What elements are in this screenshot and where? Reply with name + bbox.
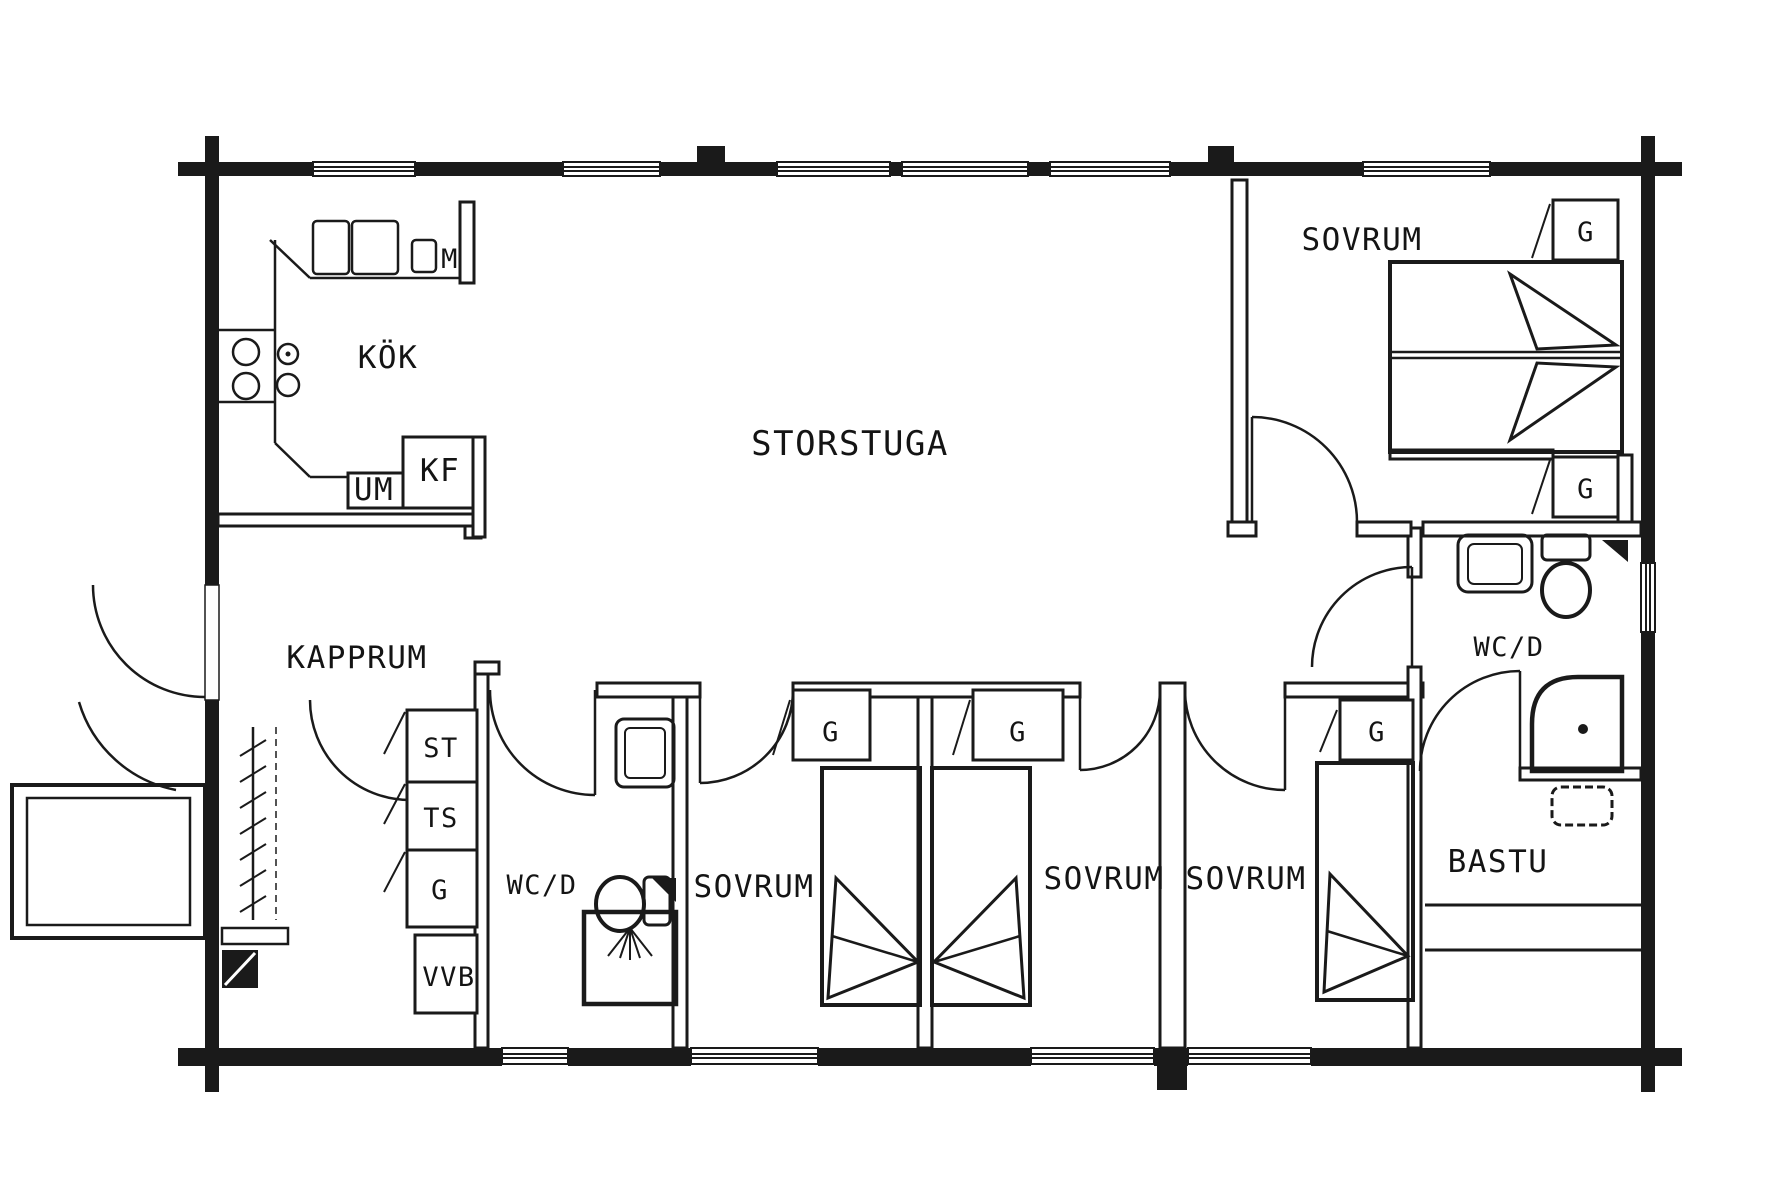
sink-right — [1458, 535, 1532, 592]
door-kapprum — [310, 700, 410, 800]
bed-sovrum-1 — [822, 768, 920, 1005]
kitchen-sink — [313, 221, 398, 274]
door-sovrum-2 — [1080, 690, 1160, 770]
bench — [222, 928, 288, 944]
corner-marker-right — [1602, 540, 1628, 562]
window-top-2 — [563, 162, 660, 176]
label-wc-mid: WC/D — [506, 870, 577, 901]
label-g-room2: G — [1009, 717, 1027, 748]
label-sovrum-3: SOVRUM — [1186, 861, 1307, 897]
toilet-mid — [596, 877, 670, 931]
bed-top-right-double — [1390, 262, 1622, 452]
closet-swing-lines — [773, 204, 1550, 755]
entrance-threshold — [205, 585, 219, 700]
label-sovrum-1: SOVRUM — [694, 869, 815, 905]
shower-right — [1532, 677, 1622, 771]
label-g-room3: G — [1368, 717, 1386, 748]
floor-plan: STORSTUGA KÖK KAPPRUM SOVRUM SOVRUM SOVR… — [0, 0, 1770, 1181]
label-kok: KÖK — [358, 339, 419, 376]
bed-sovrum-3 — [1317, 763, 1413, 1000]
shower-spray-icon — [608, 928, 652, 960]
door-entrance — [79, 585, 205, 790]
label-storstuga: STORSTUGA — [751, 424, 949, 464]
corner-marker-mid — [652, 878, 676, 902]
sauna-heater — [1552, 787, 1612, 825]
label-ts: TS — [423, 803, 459, 834]
label-bastu: BASTU — [1448, 844, 1549, 880]
window-top-6 — [1363, 162, 1490, 176]
label-g-tr2: G — [1577, 474, 1595, 505]
label-sovrum-top: SOVRUM — [1302, 222, 1423, 258]
sink-mid — [616, 719, 674, 787]
cabinet-swing-lines — [384, 712, 405, 892]
bathroom-fixtures — [584, 535, 1628, 1004]
door-wc-mid — [490, 690, 595, 795]
label-g-room1: G — [822, 717, 840, 748]
label-st: ST — [423, 733, 459, 764]
label-m: M — [441, 244, 459, 275]
label-sovrum-2: SOVRUM — [1044, 861, 1165, 897]
stove-burners — [233, 339, 299, 399]
window-top-3 — [777, 162, 890, 176]
door-sovrum-3 — [1185, 690, 1285, 790]
window-bottom-2 — [691, 1048, 818, 1064]
door-sovrum-top — [1252, 417, 1357, 522]
entrance-porch — [12, 785, 205, 938]
microwave — [412, 240, 436, 272]
label-g-tr1: G — [1577, 217, 1595, 248]
window-bottom-4 — [1188, 1048, 1311, 1064]
coat-rack — [240, 727, 276, 920]
label-kf: KF — [420, 453, 460, 489]
label-kapprum: KAPPRUM — [286, 640, 427, 676]
window-top-1 — [313, 162, 415, 176]
label-wc-right: WC/D — [1473, 632, 1544, 663]
window-bottom-1 — [502, 1048, 568, 1064]
window-bottom-3 — [1031, 1048, 1154, 1064]
window-right — [1641, 563, 1655, 632]
door-bastu — [1420, 671, 1520, 771]
bed-sovrum-2 — [932, 768, 1030, 1005]
door-wc-right — [1312, 567, 1412, 667]
window-top-5 — [1050, 162, 1170, 176]
toilet-right — [1542, 535, 1590, 617]
window-top-4 — [902, 162, 1028, 176]
label-g-kapprum: G — [431, 875, 449, 906]
label-um: UM — [354, 472, 394, 508]
floor-plan-canvas: STORSTUGA KÖK KAPPRUM SOVRUM SOVRUM SOVR… — [0, 0, 1770, 1181]
label-vvb: VVB — [422, 962, 475, 993]
